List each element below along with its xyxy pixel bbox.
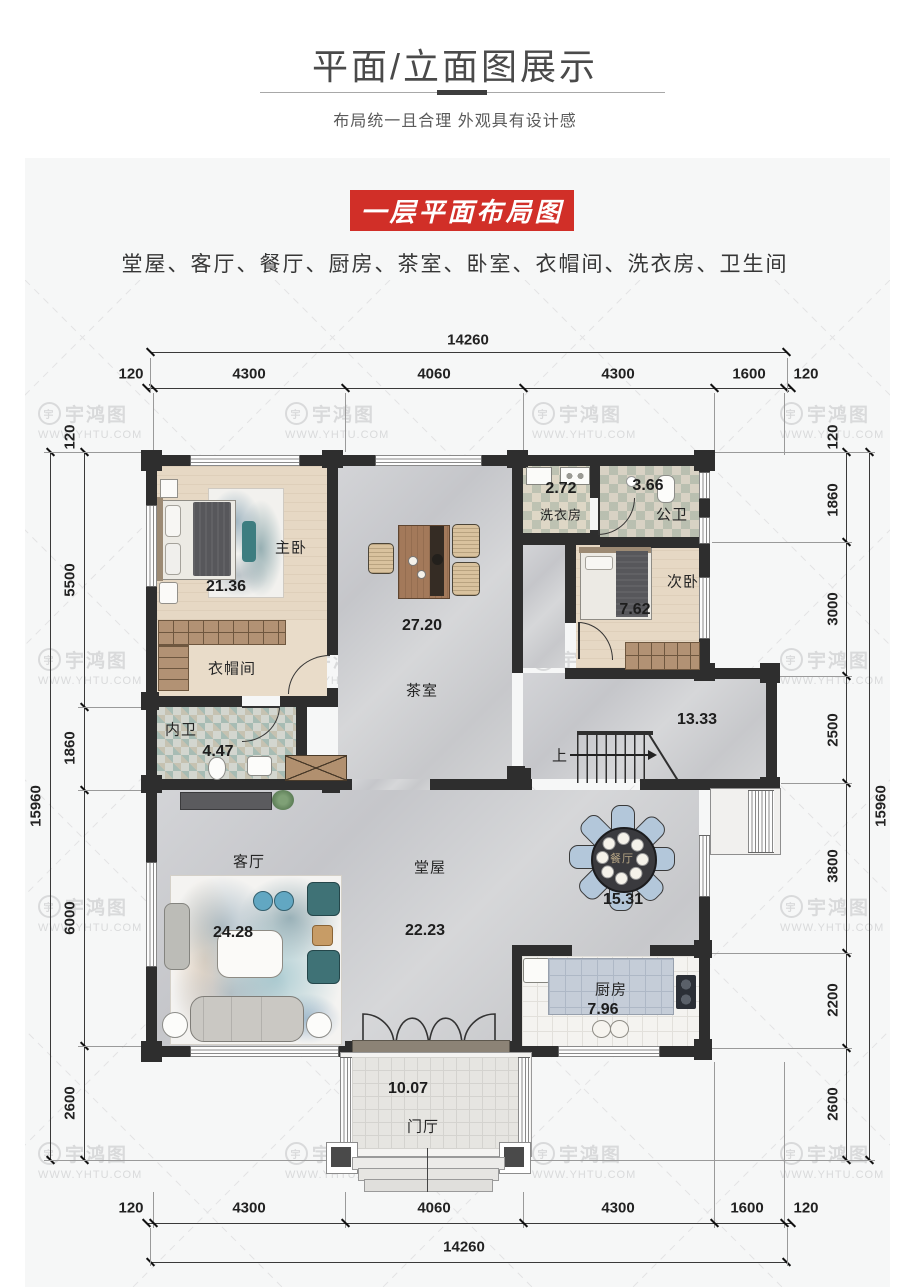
label-laundry: 洗衣房 [540,505,582,524]
label-tea: 茶室 [406,680,438,701]
watermark-logo-icon: 宇 [285,1142,308,1165]
cloak-wardrobe-top [158,620,286,645]
tea-chair-right-bottom [452,562,480,596]
dim-line [869,452,870,1160]
area-kitchen: 7.96 [587,1001,618,1019]
label-master: 主卧 [275,537,307,558]
dim-right-1860: 1860 [825,483,842,516]
watermark-url: WWW.YHTU.COM [38,1169,158,1181]
dim-top-seg-120L: 120 [118,366,143,383]
watermark-brand: 宇鸿图 [65,400,128,427]
watermark-brand: 宇鸿图 [559,400,622,427]
label-living: 客厅 [233,851,265,872]
area-dining: 15.31 [603,891,643,909]
watermark-url: WWW.YHTU.COM [38,922,158,934]
staircase [577,731,653,783]
watermark-brand: 宇鸿图 [65,1140,128,1167]
porch-section-line [427,1148,428,1192]
watermark: 宇宇鸿图WWW.YHTU.COM [780,646,900,687]
tea-cup-2 [417,570,426,579]
watermark-brand: 宇鸿图 [807,646,870,673]
living-end-table-right [306,1012,332,1038]
window-living-front [190,1046,339,1057]
dim-top-seg-1600: 1600 [732,366,765,383]
window-bedroom2-right [699,577,710,639]
master-bench [242,521,256,562]
dim-left-2600: 2600 [62,1086,79,1119]
label-dining: 餐厅 [610,850,634,866]
dim-line [146,388,791,389]
watermark: 宇宇鸿图WWW.YHTU.COM [38,646,158,687]
porch-column-left [331,1147,351,1167]
dim-top-seg-120R: 120 [793,366,818,383]
master-nightstand-bottom [159,582,178,604]
dim-left-6000: 6000 [62,901,79,934]
wall-kitchen-top-a [512,945,572,956]
living-chaise [164,903,190,970]
watermark-url: WWW.YHTU.COM [38,429,158,441]
living-stool-2 [274,891,294,911]
tea-cup-1 [408,556,418,566]
dim-right-2500: 2500 [825,713,842,746]
dim-right-3000: 3000 [825,592,842,625]
bed2-wardrobe [625,642,700,670]
porch-rail-left [340,1057,352,1151]
area-living: 24.28 [213,924,253,942]
living-plant [272,790,294,810]
cloak-wardrobe-left [158,645,189,691]
watermark-logo-icon: 宇 [285,402,308,425]
living-tv-console [180,792,272,810]
dim-right-2600: 2600 [825,1087,842,1120]
area-wc-private: 4.47 [202,743,233,761]
label-bedroom2: 次卧 [667,571,699,592]
living-end-table-left [162,1012,188,1038]
master-bed-blanket [193,502,231,576]
dim-bot-seg-1600: 1600 [730,1200,763,1217]
watermark: 宇宇鸿图WWW.YHTU.COM [38,893,158,934]
area-porch: 10.07 [388,1080,428,1098]
window-dining-right [699,835,710,897]
tea-teapot [432,554,443,565]
dim-line [84,452,85,1160]
dim-line [50,452,51,1160]
watermark: 宇宇鸿图WWW.YHTU.COM [532,400,652,441]
area-bedroom2: 7.62 [619,601,650,619]
watermark: 宇宇鸿图WWW.YHTU.COM [38,400,158,441]
tea-chair-left [368,543,394,574]
watermark-brand: 宇鸿图 [312,400,375,427]
area-wc-public: 3.66 [632,477,663,495]
porch-column-right [504,1147,524,1167]
dim-line [150,1262,787,1263]
watermark-url: WWW.YHTU.COM [532,429,652,441]
window-wcpublic-right-2 [699,517,710,544]
area-stair-hall: 13.33 [677,711,717,729]
wall-kitchen-left [512,956,522,1046]
watermark-url: WWW.YHTU.COM [38,675,158,687]
dim-bot-total: 14260 [443,1239,485,1256]
watermark-brand: 宇鸿图 [807,400,870,427]
living-side-table [312,925,333,946]
watermark-url: WWW.YHTU.COM [532,1169,652,1181]
floorplan-showcase-page: { "header": { "title": "平面/立面图展示", "subt… [0,0,910,1287]
wall-v2 [512,455,523,673]
dim-left-120: 120 [62,424,79,449]
kitchen-stove [676,975,696,1009]
wall-bed2-left [565,545,576,623]
window-kitchen-front [558,1046,660,1057]
watermark-logo-icon: 宇 [38,402,61,425]
area-master: 21.36 [206,578,246,596]
wall-laundry-wc [590,455,600,498]
dim-right-2200: 2200 [825,983,842,1016]
window-wcpublic-right-1 [699,472,710,499]
stair-arrow-head [648,750,657,760]
dim-line [150,352,787,353]
master-nightstand-top [160,479,178,498]
master-bed-pillow-1 [165,505,181,537]
dim-bot-seg-120L: 120 [118,1200,143,1217]
dim-line [146,1223,791,1224]
watermark-logo-icon: 宇 [780,895,803,918]
kitchen-stool-1 [592,1020,611,1038]
kitchen-stool-2 [610,1020,629,1038]
dim-top-seg-4300R: 4300 [601,366,634,383]
dim-top-seg-4060: 4060 [417,366,450,383]
side-porch-steps [748,790,774,853]
master-bed-pillow-2 [165,543,181,575]
wc-private-sink [247,756,272,776]
floor-opening [352,779,430,790]
dim-line [846,452,847,1160]
bed2-pillow-1 [585,556,613,570]
corridor-cabinet [285,755,347,781]
label-hall: 堂屋 [414,857,446,878]
watermark-logo-icon: 宇 [780,648,803,671]
window-master-top [190,455,300,466]
dim-left-5500: 5500 [62,563,79,596]
porch-rail-right [518,1057,530,1151]
watermark-brand: 宇鸿图 [807,1140,870,1167]
wall-wc-top-a [146,696,242,707]
kitchen-fridge [523,958,550,983]
watermark-brand: 宇鸿图 [559,1140,622,1167]
label-kitchen: 厨房 [595,979,627,1000]
window-living-left [146,862,157,967]
dim-top-total: 14260 [447,332,489,349]
living-armchair-1 [307,882,340,916]
living-sofa [190,996,304,1042]
master-bed-headboard [157,497,163,581]
watermark-brand: 宇鸿图 [65,646,128,673]
stair-arrow [570,754,650,756]
dim-right-total: 15960 [873,785,890,827]
living-armchair-2 [307,950,340,984]
dim-right-120: 120 [825,424,842,449]
living-stool-1 [253,891,273,911]
area-laundry: 2.72 [545,480,576,498]
window-tea-top [375,455,482,466]
label-porch: 门厅 [407,1116,439,1137]
tea-chair-right-top [452,524,480,558]
porch-step-3 [364,1179,493,1192]
floor-corridor [523,545,565,668]
label-wc-public: 公卫 [656,504,688,525]
label-wc-private: 内卫 [165,719,197,740]
watermark-url: WWW.YHTU.COM [780,1169,900,1181]
area-hall: 22.23 [405,922,445,940]
dim-right-3800: 3800 [825,849,842,882]
wall-laundry-bottom [512,533,600,545]
watermark-brand: 宇鸿图 [807,893,870,920]
dim-left-1860: 1860 [62,731,79,764]
dim-bot-seg-4300L: 4300 [232,1200,265,1217]
dim-top-seg-4300L: 4300 [232,366,265,383]
label-stairs-up: 上 [552,745,568,766]
watermark: 宇宇鸿图WWW.YHTU.COM [780,893,900,934]
dim-bot-seg-4060: 4060 [417,1200,450,1217]
label-cloak: 衣帽间 [208,658,256,679]
area-tea: 27.20 [402,617,442,635]
wall-wc-top-b [280,696,338,707]
watermark-logo-icon: 宇 [532,1142,555,1165]
watermark-url: WWW.YHTU.COM [780,922,900,934]
dim-bot-seg-120R: 120 [793,1200,818,1217]
window-master-left [146,505,157,587]
dim-left-total: 15960 [28,785,45,827]
watermark-logo-icon: 宇 [532,402,555,425]
dim-bot-seg-4300R: 4300 [601,1200,634,1217]
wall-v1 [327,455,338,655]
